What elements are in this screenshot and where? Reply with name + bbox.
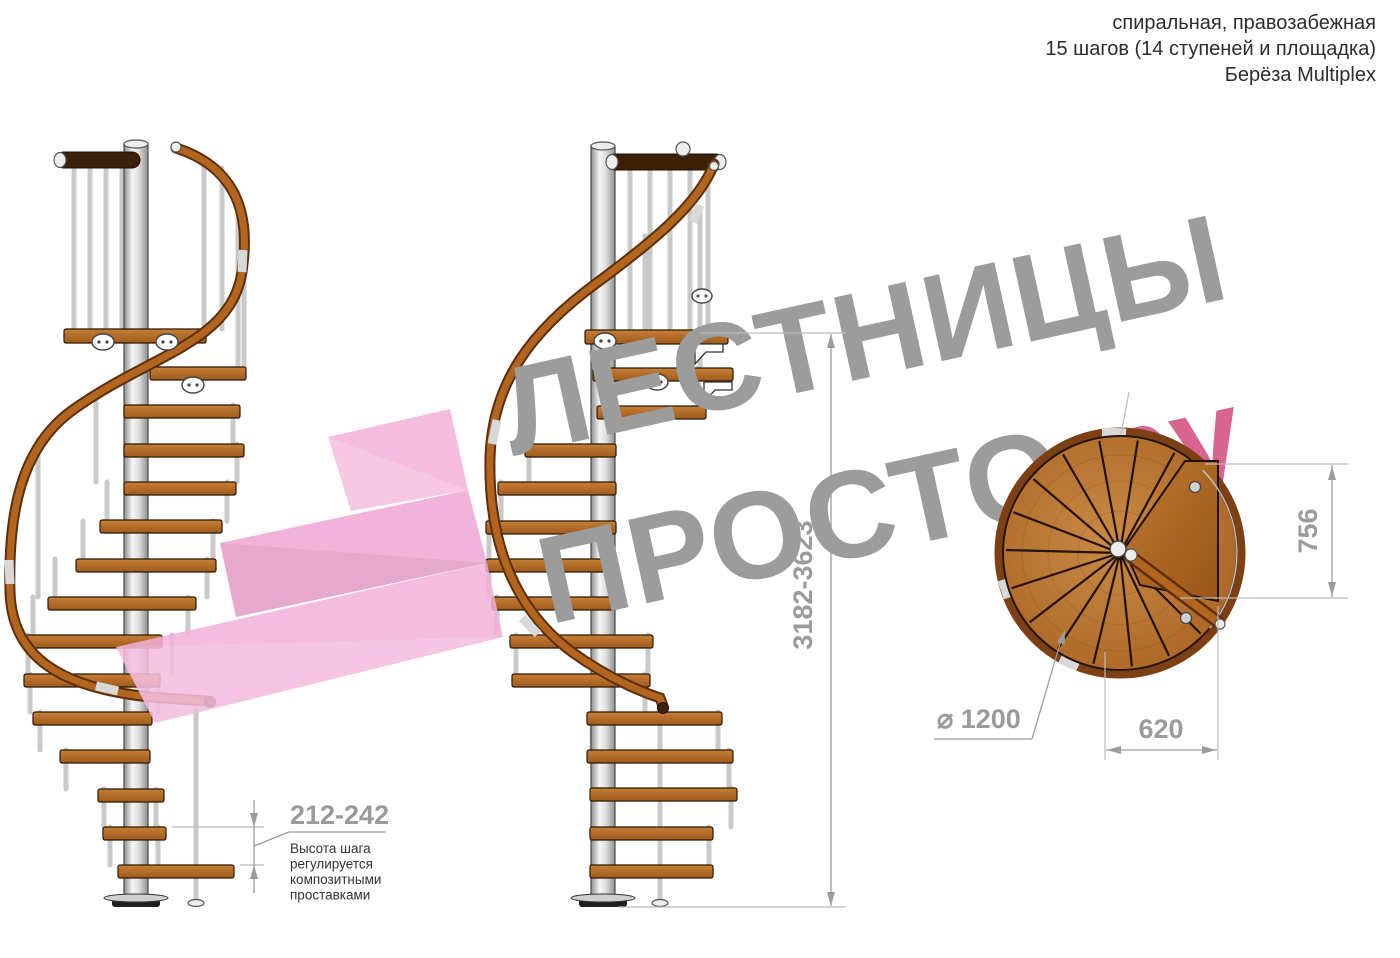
title-line-material: Берёза Multiplex xyxy=(1045,62,1376,88)
step-height-note: Высота шага регулируется композитными пр… xyxy=(290,841,381,903)
total-height-label: 3182-3623 xyxy=(788,520,818,649)
pole-hub xyxy=(1110,541,1126,557)
handrail-ball xyxy=(1125,549,1137,561)
rim-cap-top xyxy=(1190,482,1201,493)
note-line-3: композитными xyxy=(290,872,381,887)
landing-depth-label: 756 xyxy=(1293,508,1323,553)
dimension-total-height: 3182-3623 xyxy=(618,333,846,907)
note-line-2: регулируется xyxy=(290,857,373,872)
step-height-label: 212-242 xyxy=(290,800,389,830)
handrail-end-cap xyxy=(1215,619,1225,629)
drawing-canvas: ЛЕСТНИЦЫ ПРОСТО.ру xyxy=(0,0,1400,958)
title-block: спиральная, правозабежная 15 шагов (14 с… xyxy=(1045,10,1376,88)
rim-cap-bottom xyxy=(1181,613,1192,624)
title-line-steps: 15 шагов (14 ступеней и площадка) xyxy=(1045,36,1376,62)
plan-and-dimensions-layer: 3182-3623 756 620 ⌀ 1200 xyxy=(0,0,1400,958)
landing-width-label: 620 xyxy=(1138,714,1183,744)
diameter-label: ⌀ 1200 xyxy=(937,704,1021,734)
note-line-1: Высота шага xyxy=(290,841,371,856)
dimension-step-height: 212-242 Высота шага регулируется компози… xyxy=(172,800,389,903)
top-plan-view xyxy=(999,392,1241,674)
title-line-type: спиральная, правозабежная xyxy=(1045,10,1376,36)
note-line-4: проставками xyxy=(290,888,370,903)
